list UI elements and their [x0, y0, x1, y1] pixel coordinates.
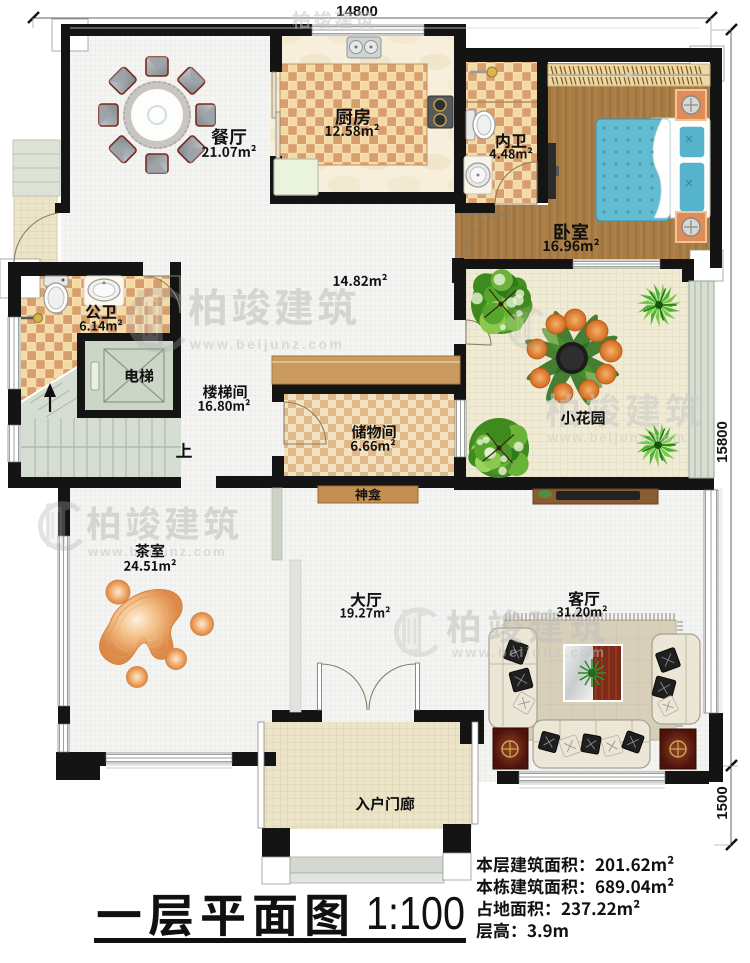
svg-text:1500: 1500	[714, 786, 731, 819]
svg-text:www.beijunz.com: www.beijunz.com	[547, 430, 687, 445]
svg-text:1:100: 1:100	[366, 887, 465, 939]
svg-text:15800: 15800	[714, 421, 731, 463]
svg-text:www.beijunz.com: www.beijunz.com	[451, 644, 606, 660]
svg-text:14800: 14800	[336, 3, 378, 20]
svg-text:www.beijunz.com: www.beijunz.com	[189, 336, 344, 352]
